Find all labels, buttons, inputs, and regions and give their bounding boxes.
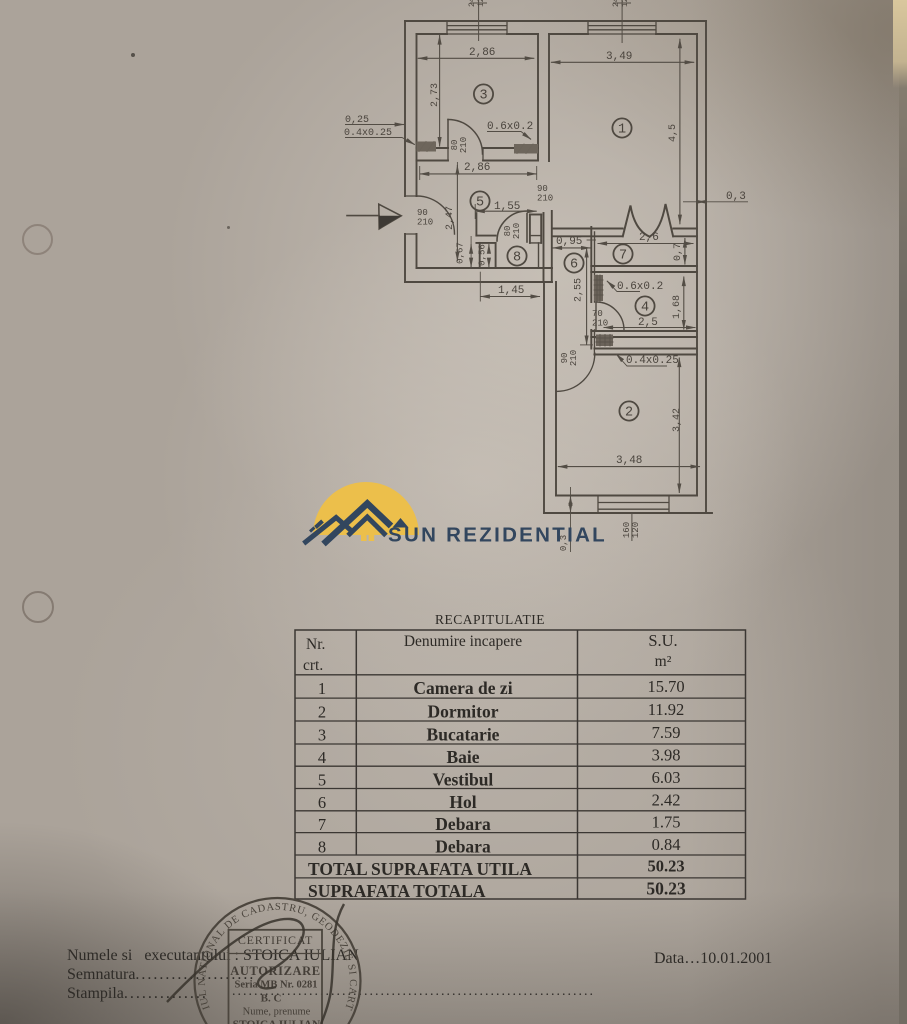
svg-text:Camera de zi: Camera de zi [413, 678, 512, 698]
svg-text:0,7: 0,7 [673, 243, 684, 261]
svg-text:Nr.: Nr. [306, 636, 325, 653]
svg-text:2,86: 2,86 [464, 162, 490, 174]
svg-text:0.84: 0.84 [652, 835, 681, 854]
svg-text:0,67: 0,67 [456, 242, 466, 264]
svg-text:4: 4 [318, 748, 326, 767]
svg-text:3.98: 3.98 [652, 746, 681, 765]
svg-text:1: 1 [618, 123, 626, 138]
svg-text:7.59: 7.59 [652, 723, 681, 742]
svg-text:Data…10.01.2001: Data…10.01.2001 [654, 950, 772, 967]
svg-text:Vestibul: Vestibul [433, 770, 494, 790]
svg-text:7: 7 [619, 249, 627, 264]
svg-text:2: 2 [625, 406, 633, 421]
svg-text:RECAPITULATIE: RECAPITULATIE [435, 612, 545, 627]
svg-text:Debara: Debara [435, 837, 491, 857]
svg-text:120: 120 [631, 522, 641, 538]
svg-text:Nume, prenume: Nume, prenume [243, 1007, 311, 1018]
svg-text:1,45: 1,45 [498, 285, 524, 297]
svg-text:120: 120 [621, 0, 630, 7]
svg-text:50.23: 50.23 [647, 857, 684, 876]
svg-text:3,42: 3,42 [672, 408, 683, 432]
svg-text:4,5: 4,5 [668, 124, 679, 142]
svg-text:0,95: 0,95 [556, 236, 582, 248]
svg-text:crt.: crt. [303, 657, 323, 674]
svg-text:3,48: 3,48 [616, 455, 642, 467]
svg-text:2,47: 2,47 [445, 206, 456, 230]
svg-text:210: 210 [569, 350, 579, 366]
svg-text:Seria MB Nr. 0281: Seria MB Nr. 0281 [234, 980, 317, 991]
svg-text:5: 5 [318, 771, 326, 790]
svg-text:3,49: 3,49 [606, 51, 632, 63]
svg-text:240: 240 [468, 0, 477, 7]
svg-text:90: 90 [417, 208, 428, 218]
svg-text:2,5: 2,5 [638, 317, 658, 329]
svg-text:6: 6 [318, 793, 326, 812]
svg-text:Semnatura....................: Semnatura.................... [67, 966, 255, 983]
svg-text:1,68: 1,68 [672, 295, 683, 319]
svg-text:0.4x0.25: 0.4x0.25 [626, 355, 679, 367]
svg-text:6.03: 6.03 [652, 768, 681, 787]
svg-text:Denumire incapere: Denumire incapere [404, 633, 522, 650]
svg-text:STOICA IULIAN: STOICA IULIAN [233, 1019, 321, 1024]
svg-text:90: 90 [537, 184, 548, 194]
svg-text:Dormitor: Dormitor [428, 702, 499, 722]
svg-text:1.75: 1.75 [652, 813, 681, 832]
svg-text:Debara: Debara [435, 814, 491, 834]
svg-text:210: 210 [417, 218, 433, 228]
svg-text:2,6: 2,6 [639, 232, 659, 244]
svg-text:5: 5 [476, 196, 484, 211]
svg-text:0,3: 0,3 [726, 191, 746, 203]
svg-text:0.6x0.2: 0.6x0.2 [487, 121, 533, 133]
svg-text:Stampila..............: Stampila.............. [67, 985, 208, 1002]
svg-text:Baie: Baie [446, 747, 479, 767]
svg-text:Bucatarie: Bucatarie [427, 725, 500, 745]
svg-text:2,73: 2,73 [430, 83, 441, 107]
svg-text:0,56: 0,56 [478, 244, 488, 266]
svg-text:210: 210 [512, 223, 522, 239]
svg-text:Hol: Hol [449, 792, 476, 812]
svg-text:70: 70 [592, 309, 603, 319]
svg-text:3: 3 [479, 89, 487, 104]
svg-text:0.6x0.2: 0.6x0.2 [617, 281, 663, 293]
svg-text:11.92: 11.92 [648, 700, 685, 719]
svg-text:0,25: 0,25 [345, 115, 369, 126]
svg-text:7: 7 [318, 815, 326, 834]
svg-text:2,55: 2,55 [574, 278, 585, 302]
svg-text:8: 8 [513, 251, 521, 266]
svg-text:2,86: 2,86 [469, 47, 495, 59]
svg-text:50.23: 50.23 [646, 879, 686, 899]
svg-text:IUL NATIONAL DE CADASTRU, GEOD: IUL NATIONAL DE CADASTRU, GEODEZIE SI CA… [0, 0, 358, 1012]
svg-text:3: 3 [318, 726, 326, 745]
svg-text:4: 4 [641, 301, 649, 316]
svg-text:210: 210 [592, 319, 608, 329]
svg-text:0.4x0.25: 0.4x0.25 [344, 128, 392, 139]
svg-text:210: 210 [459, 137, 469, 153]
svg-text:8: 8 [318, 838, 326, 857]
svg-text:m²: m² [655, 653, 672, 670]
svg-text:S.U.: S.U. [648, 631, 677, 650]
svg-text:6: 6 [570, 258, 578, 273]
svg-text:240: 240 [612, 0, 621, 7]
svg-text:1,55: 1,55 [494, 201, 520, 213]
svg-text:2: 2 [318, 703, 326, 722]
svg-text:15.70: 15.70 [647, 677, 684, 696]
svg-text:120: 120 [477, 0, 486, 7]
svg-text:2.42: 2.42 [652, 791, 681, 810]
svg-text:B. C: B. C [261, 993, 282, 1005]
svg-text:210: 210 [537, 194, 553, 204]
svg-text:SUPRAFATA TOTALA: SUPRAFATA TOTALA [308, 881, 486, 901]
svg-text:SUN REZIDENTIAL: SUN REZIDENTIAL [388, 524, 607, 547]
svg-text:TOTAL SUPRAFATA UTILA: TOTAL SUPRAFATA UTILA [308, 859, 532, 879]
svg-text:1: 1 [318, 679, 326, 698]
